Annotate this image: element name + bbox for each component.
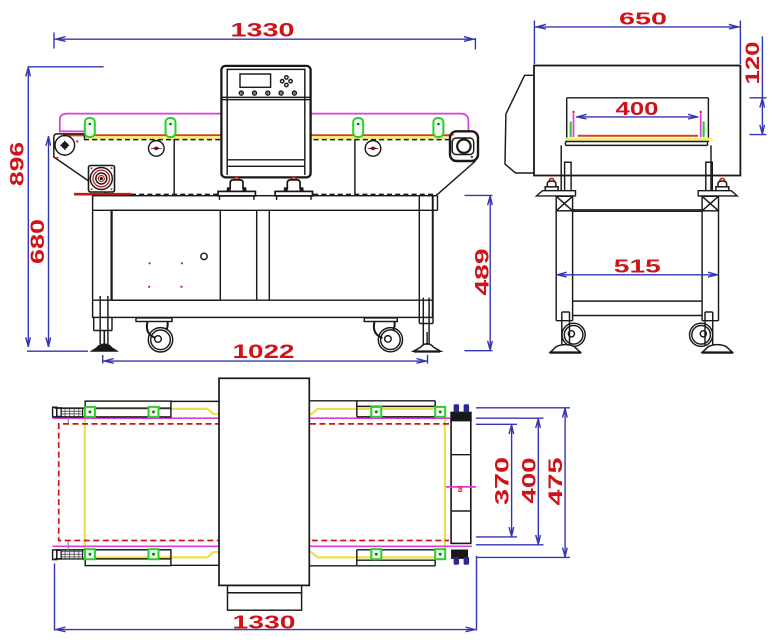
svg-text:1022: 1022 — [233, 342, 295, 363]
svg-text:650: 650 — [619, 8, 667, 28]
svg-text:1330: 1330 — [231, 21, 295, 42]
svg-text:1330: 1330 — [233, 612, 296, 632]
svg-text:400: 400 — [616, 98, 659, 119]
svg-text:515: 515 — [614, 256, 661, 277]
svg-text:896: 896 — [7, 142, 29, 186]
svg-text:120: 120 — [742, 41, 764, 84]
svg-text:680: 680 — [27, 219, 49, 264]
svg-text:400: 400 — [518, 457, 540, 503]
svg-text:60: 60 — [459, 485, 465, 492]
svg-text:475: 475 — [545, 457, 567, 505]
svg-text:370: 370 — [492, 457, 514, 505]
svg-text:489: 489 — [471, 248, 493, 295]
